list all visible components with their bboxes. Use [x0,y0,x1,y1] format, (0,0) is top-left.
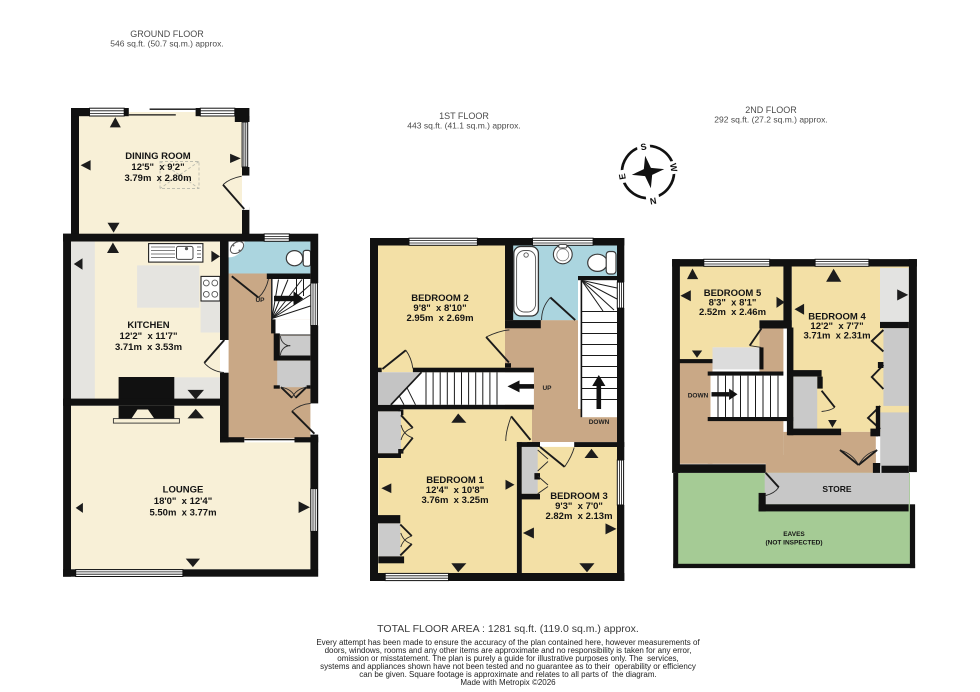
svg-text:DOWN: DOWN [589,419,610,426]
svg-text:2.95m x 2.69m: 2.95m x 2.69m [406,313,473,324]
svg-text:UP: UP [255,297,265,304]
svg-text:STORE: STORE [822,484,851,494]
svg-text:1ST FLOOR: 1ST FLOOR [439,111,489,121]
svg-text:5.50m x 3.77m: 5.50m x 3.77m [149,508,216,519]
svg-text:2.52m x 2.46m: 2.52m x 2.46m [699,307,766,318]
svg-text:12'2" x 11'7": 12'2" x 11'7" [120,331,178,342]
svg-text:546 sq.ft. (50.7 sq.m.) approx: 546 sq.ft. (50.7 sq.m.) approx. [110,39,223,49]
svg-text:GROUND FLOOR: GROUND FLOOR [130,29,204,39]
svg-text:KITCHEN: KITCHEN [127,320,169,331]
svg-text:3.76m x 3.25m: 3.76m x 3.25m [421,495,488,506]
svg-text:3.71m x 3.53m: 3.71m x 3.53m [115,342,182,353]
svg-text:LOUNGE: LOUNGE [163,485,204,496]
svg-text:DINING ROOM: DINING ROOM [125,151,191,162]
svg-text:3.79m x 2.80m: 3.79m x 2.80m [124,173,191,184]
svg-text:EAVES: EAVES [783,531,805,538]
svg-text:TOTAL FLOOR AREA : 1281 sq.ft.: TOTAL FLOOR AREA : 1281 sq.ft. (119.0 sq… [377,623,639,635]
svg-text:Made with Metropix ©2026: Made with Metropix ©2026 [460,678,556,687]
svg-text:12'5" x 9'2": 12'5" x 9'2" [131,162,184,173]
svg-text:18'0" x 12'4": 18'0" x 12'4" [154,496,212,507]
svg-text:UP: UP [542,385,552,392]
svg-text:443 sq.ft. (41.1 sq.m.) approx: 443 sq.ft. (41.1 sq.m.) approx. [407,121,520,131]
svg-text:DOWN: DOWN [688,393,709,400]
svg-text:292 sq.ft. (27.2 sq.m.) approx: 292 sq.ft. (27.2 sq.m.) approx. [714,115,827,125]
svg-text:2.82m x 2.13m: 2.82m x 2.13m [545,511,612,522]
svg-text:3.71m x 2.31m: 3.71m x 2.31m [803,331,870,342]
svg-text:2ND FLOOR: 2ND FLOOR [745,105,797,115]
svg-text:(NOT INSPECTED): (NOT INSPECTED) [765,540,822,547]
